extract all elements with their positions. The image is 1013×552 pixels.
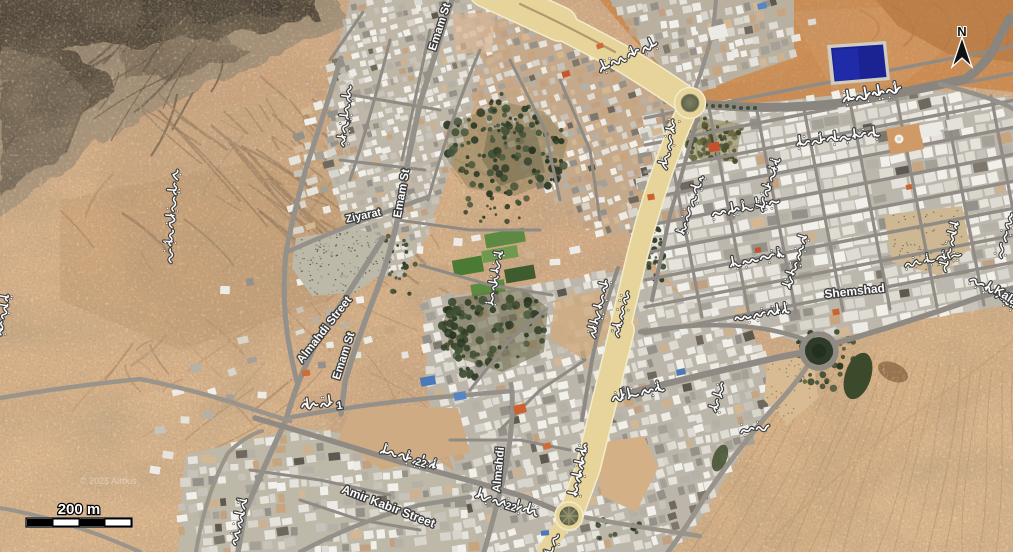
svg-text:200 m: 200 m (58, 501, 101, 518)
svg-text:© 2025 Airbus: © 2025 Airbus (80, 476, 137, 486)
